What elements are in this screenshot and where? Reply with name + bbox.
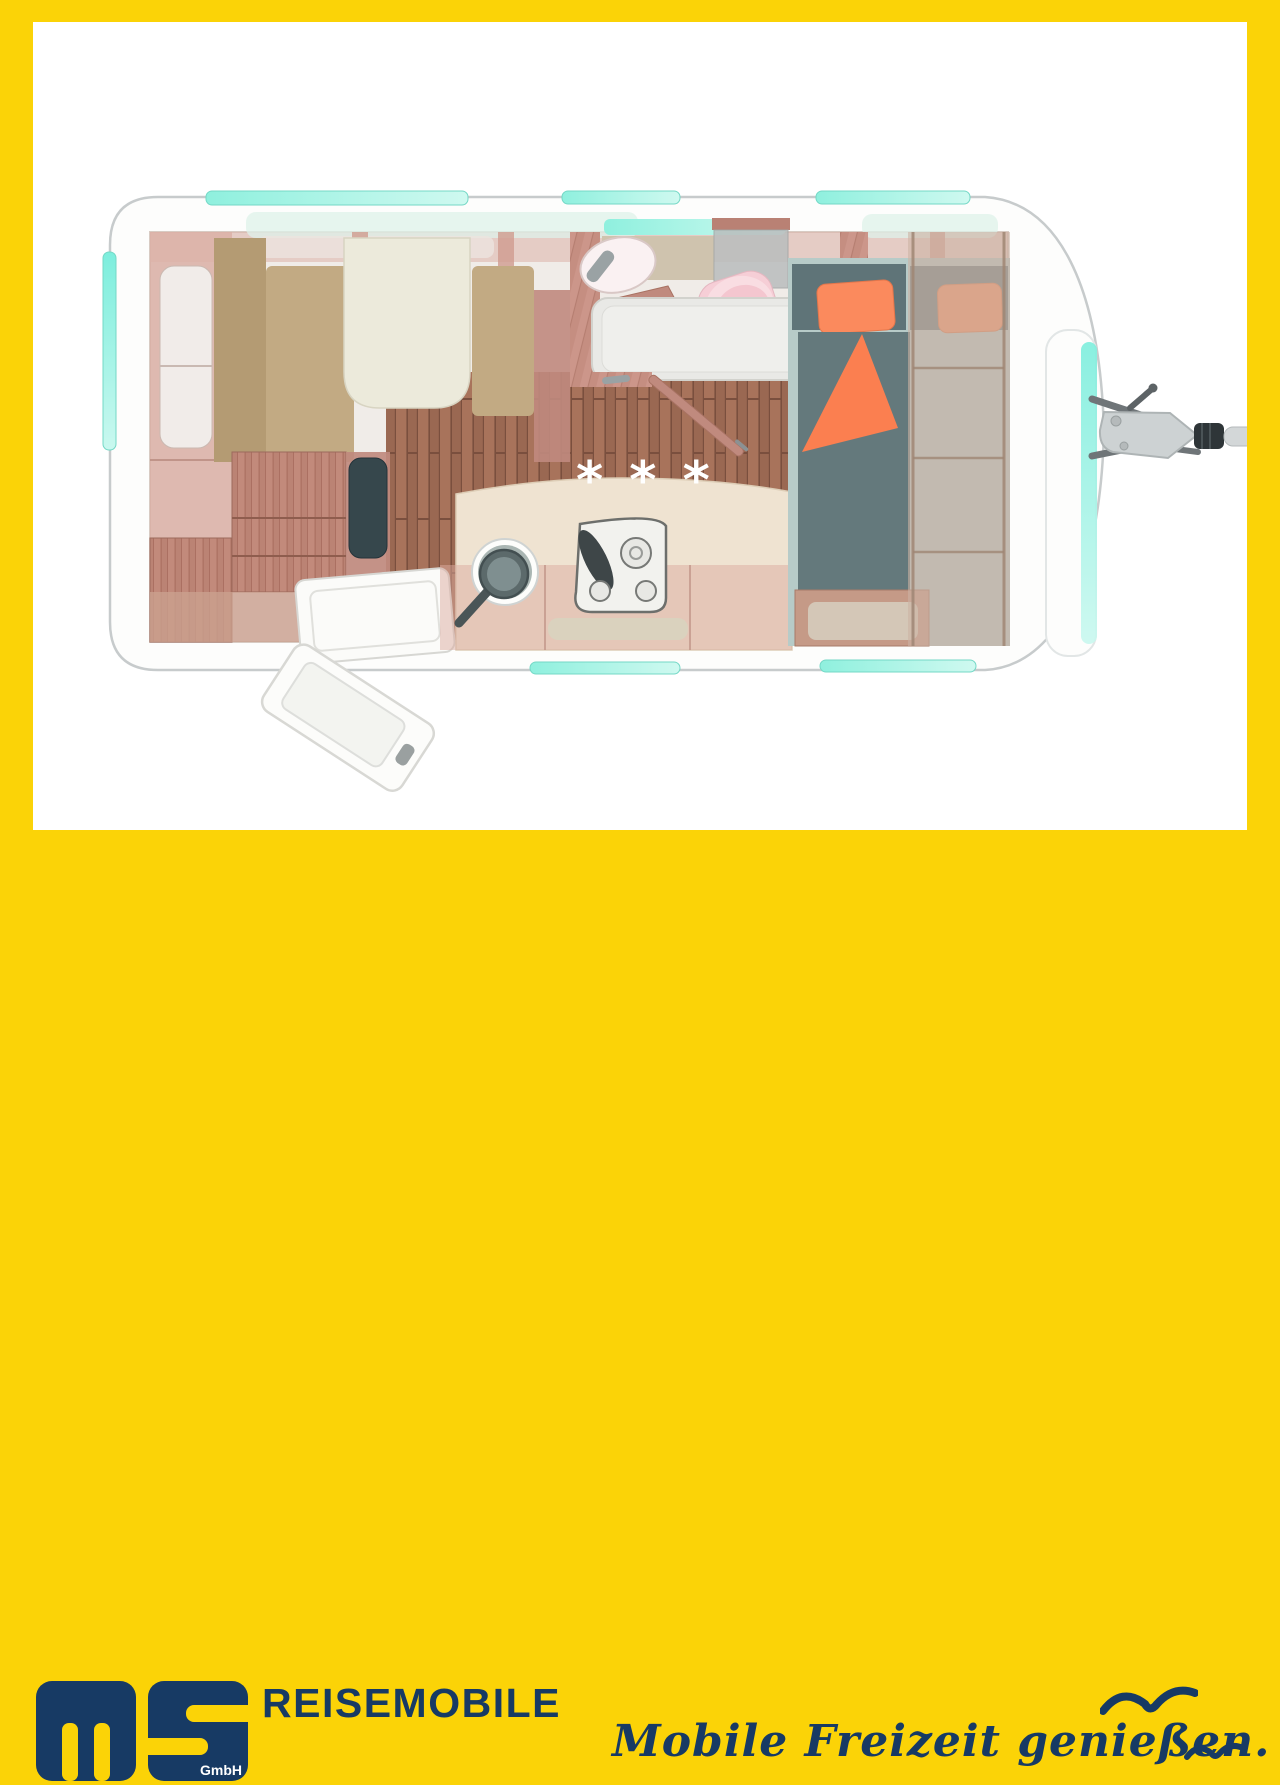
caravan-floorplan: * * * [33,22,1247,830]
front-window [1046,330,1097,656]
seagull-icon-small [1184,1736,1246,1766]
shower-tray [295,567,456,664]
bench-backrest [214,238,266,462]
shower-floor [592,298,812,380]
wardrobe [908,232,1010,646]
bench-cushion-left [266,266,354,462]
roof-window-front [816,191,970,204]
bed-pillow-left [816,279,895,334]
dinette-table [344,238,470,408]
rear-window-strip [103,252,116,450]
gas-hob [572,518,666,612]
bottom-window-front [820,660,976,672]
roof-window-rear [206,191,468,205]
bottom-window-mid [530,662,680,674]
logo-suffix: GmbH [200,1762,242,1778]
slogan: Mobile Freizeit genießen. [612,1716,1172,1767]
seagull-icon-large [1100,1680,1198,1724]
tv [349,458,387,558]
roof-window-mid [562,191,680,204]
bed-area [788,232,1010,646]
wordmark: REISEMOBILE [262,1680,561,1727]
bench-cushion-right [472,266,534,416]
brand-band: GmbH REISEMOBILE Mobile Freizeit genieße… [0,830,1280,959]
heating-marker: * * * [576,451,714,511]
advert-page: { "branding": { "logo_text": "ms", "logo… [0,0,1280,959]
ms-logo: GmbH [36,1681,254,1785]
hitch-plug [1224,427,1247,446]
